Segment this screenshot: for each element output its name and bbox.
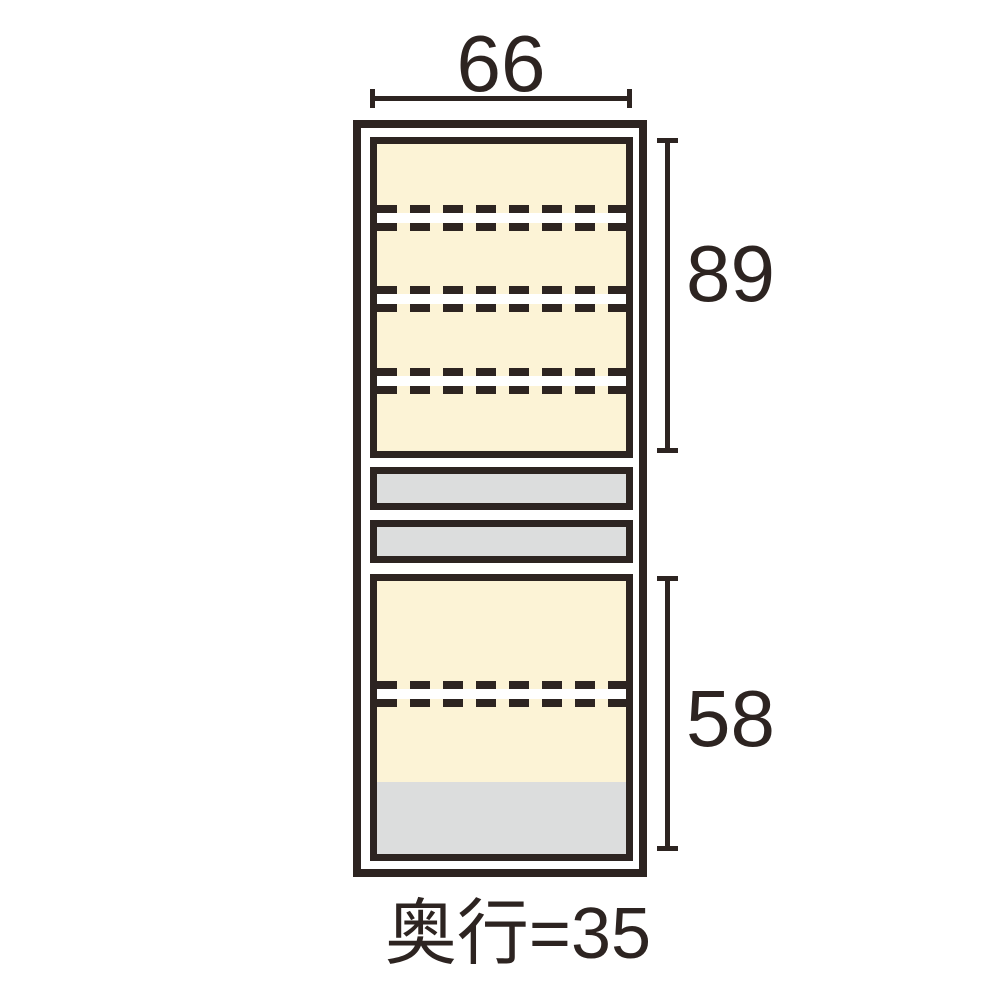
lower-height-dimension-label: 58 (686, 679, 775, 759)
lower-compartment (370, 574, 633, 861)
upper-height-dimension-label: 89 (686, 234, 775, 314)
adjustable-shelf-line-3 (377, 368, 626, 394)
dimension-cap-left (370, 89, 375, 108)
drawer-1 (370, 467, 633, 510)
upper-height-dimension-line (657, 138, 678, 453)
lower-height-dimension-line (657, 576, 678, 851)
dimension-stem (665, 138, 670, 453)
dimension-cap-top (657, 576, 678, 581)
adjustable-shelf-line-1 (377, 205, 626, 231)
dimension-stem (665, 576, 670, 851)
upper-compartment (370, 137, 633, 458)
adjustable-shelf-line-2 (377, 286, 626, 312)
dimension-cap-bottom (657, 448, 678, 453)
dimension-cap-bottom (657, 846, 678, 851)
dimension-cap-right (627, 89, 632, 108)
adjustable-shelf-line-4 (377, 681, 626, 707)
drawer-2 (370, 520, 633, 563)
width-dimension-line (370, 96, 632, 101)
width-dimension-label: 66 (370, 24, 632, 104)
dimension-cap-top (657, 138, 678, 143)
depth-label: 奥行=35 (338, 898, 698, 970)
base-panel (377, 782, 626, 854)
diagram-canvas: 66 89 58 奥行=35 (0, 0, 1000, 1000)
